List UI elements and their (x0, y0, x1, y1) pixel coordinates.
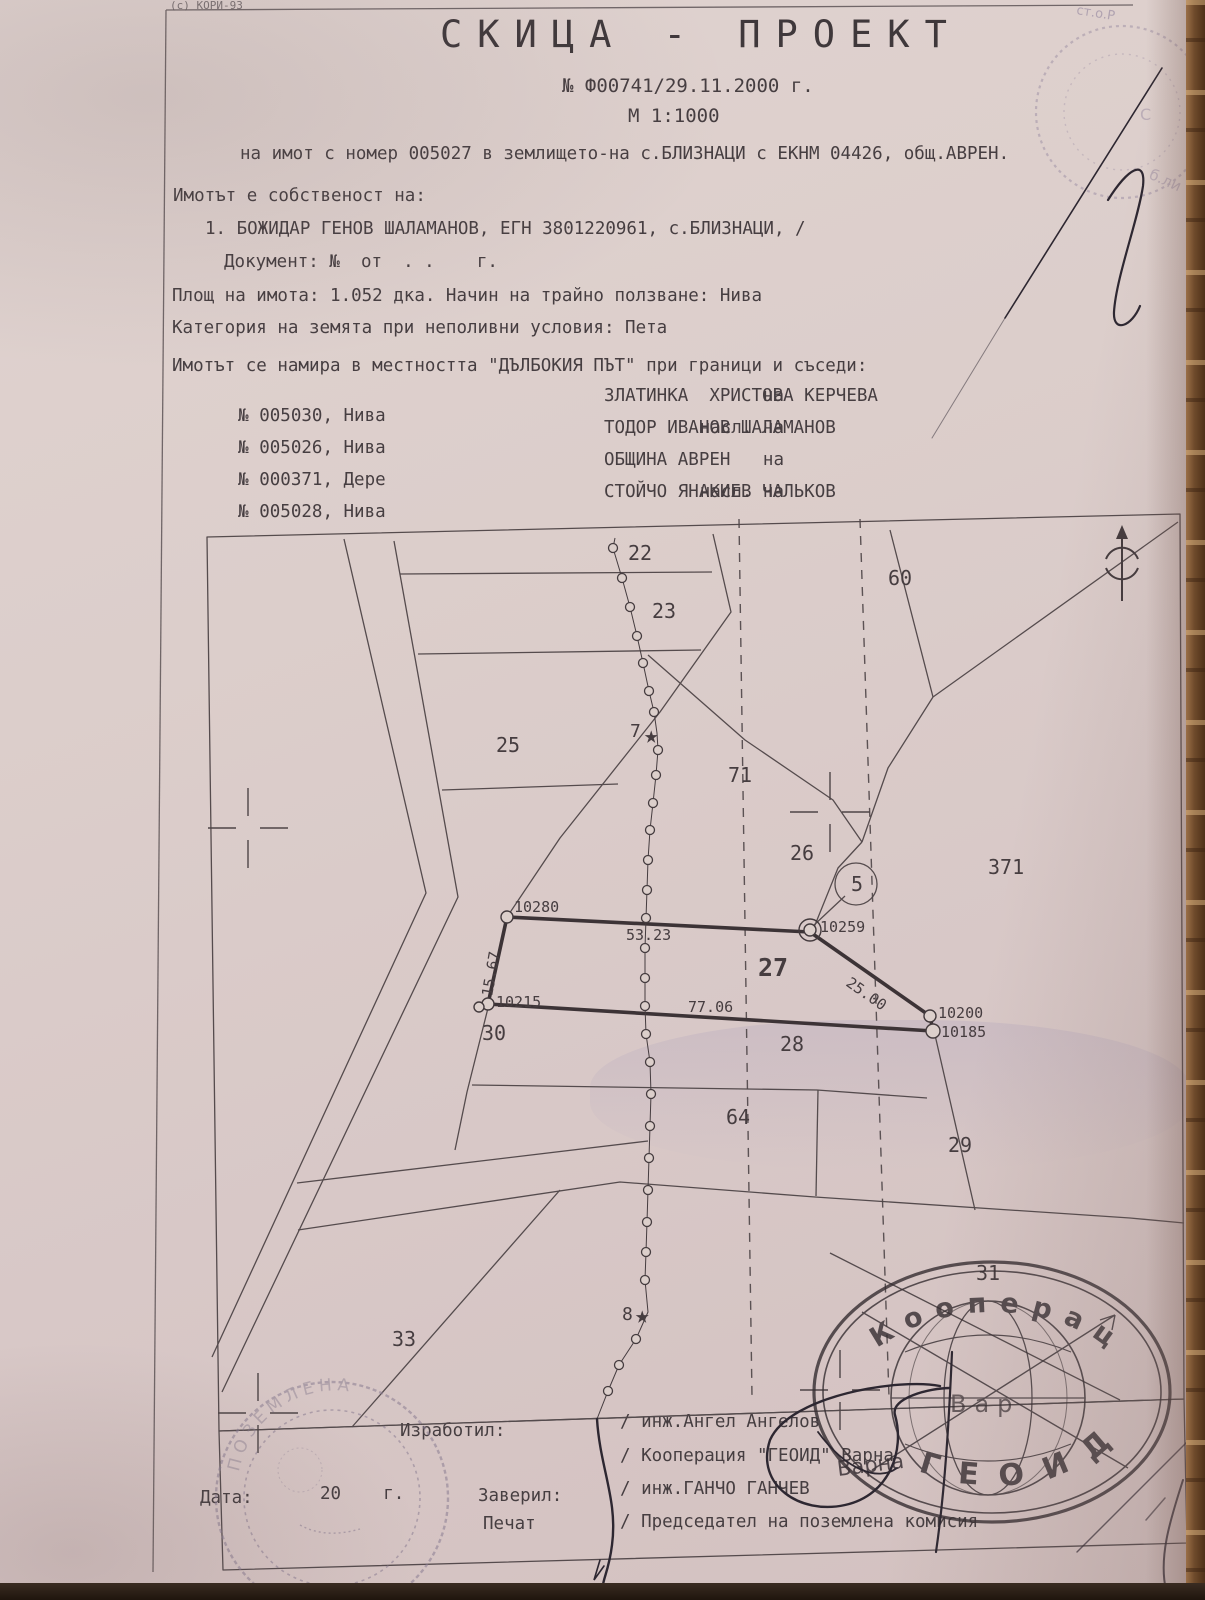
map-label: 28 (780, 1032, 804, 1056)
map-label: 71 (728, 763, 752, 787)
stamp-fragment-top: ст.о.Р (1075, 3, 1116, 24)
svg-text:ПОЗЕМЛЕНА: ПОЗЕМЛЕНА (224, 1375, 355, 1473)
map-label: 30 (482, 1021, 506, 1045)
map-label: 371 (988, 855, 1024, 879)
stamp-geoid-middle-text: Вар (950, 1390, 1020, 1418)
page-frame (153, 5, 1133, 1572)
scanned-paper: (с) КОРИ-93 СКИЦА - ПРОЕКТ № Ф00741/29.1… (0, 0, 1205, 1600)
stamp-land-commission: ПОЗЕМЛЕНА (216, 1375, 448, 1600)
map-label: 29 (948, 1133, 972, 1157)
pen-strokes (594, 68, 1192, 1592)
stamp-left-arc-text: ПОЗЕМЛЕНА (224, 1375, 355, 1473)
map-label: 10185 (941, 1023, 986, 1041)
table-edge (1186, 0, 1205, 1600)
map-label: ★ (644, 721, 658, 749)
map-labels: 22232560712637152728306429313378★★102801… (392, 541, 1024, 1351)
map-label: 10200 (938, 1004, 983, 1022)
map-label: 23 (652, 599, 676, 623)
map-label: 27 (758, 953, 788, 982)
map-lines (207, 514, 1187, 1570)
map-label: ★ (635, 1301, 649, 1329)
survey-path (597, 538, 663, 1419)
map-label: 60 (888, 566, 912, 590)
map-label: 25.00 (843, 974, 890, 1015)
map-label: 10215 (496, 993, 541, 1011)
map-label: 8 (622, 1304, 633, 1325)
map-label: 53.23 (626, 926, 671, 944)
map-label: 10259 (820, 918, 865, 936)
cadastral-map: 22232560712637152728306429313378★★102801… (0, 0, 1205, 1600)
grid-cross-marks (208, 772, 880, 1453)
map-label: 33 (392, 1327, 416, 1351)
map-label: 25 (496, 733, 520, 757)
map-label: 5 (851, 872, 863, 896)
map-label: 31 (976, 1261, 1000, 1285)
map-label: 10280 (514, 898, 559, 916)
stamp-geoid: Кооперац ГЕОИД Вар (814, 1262, 1170, 1522)
map-label: 22 (628, 541, 652, 565)
photo-bottom-edge (0, 1583, 1205, 1600)
map-label: 15.67 (478, 950, 504, 998)
map-label: 64 (726, 1105, 750, 1129)
north-arrow-icon (1106, 525, 1138, 601)
map-label: 7 (630, 721, 641, 742)
paper-edge-shadow (1146, 0, 1186, 1600)
map-label: 26 (790, 841, 814, 865)
map-label: 77.06 (688, 998, 733, 1016)
